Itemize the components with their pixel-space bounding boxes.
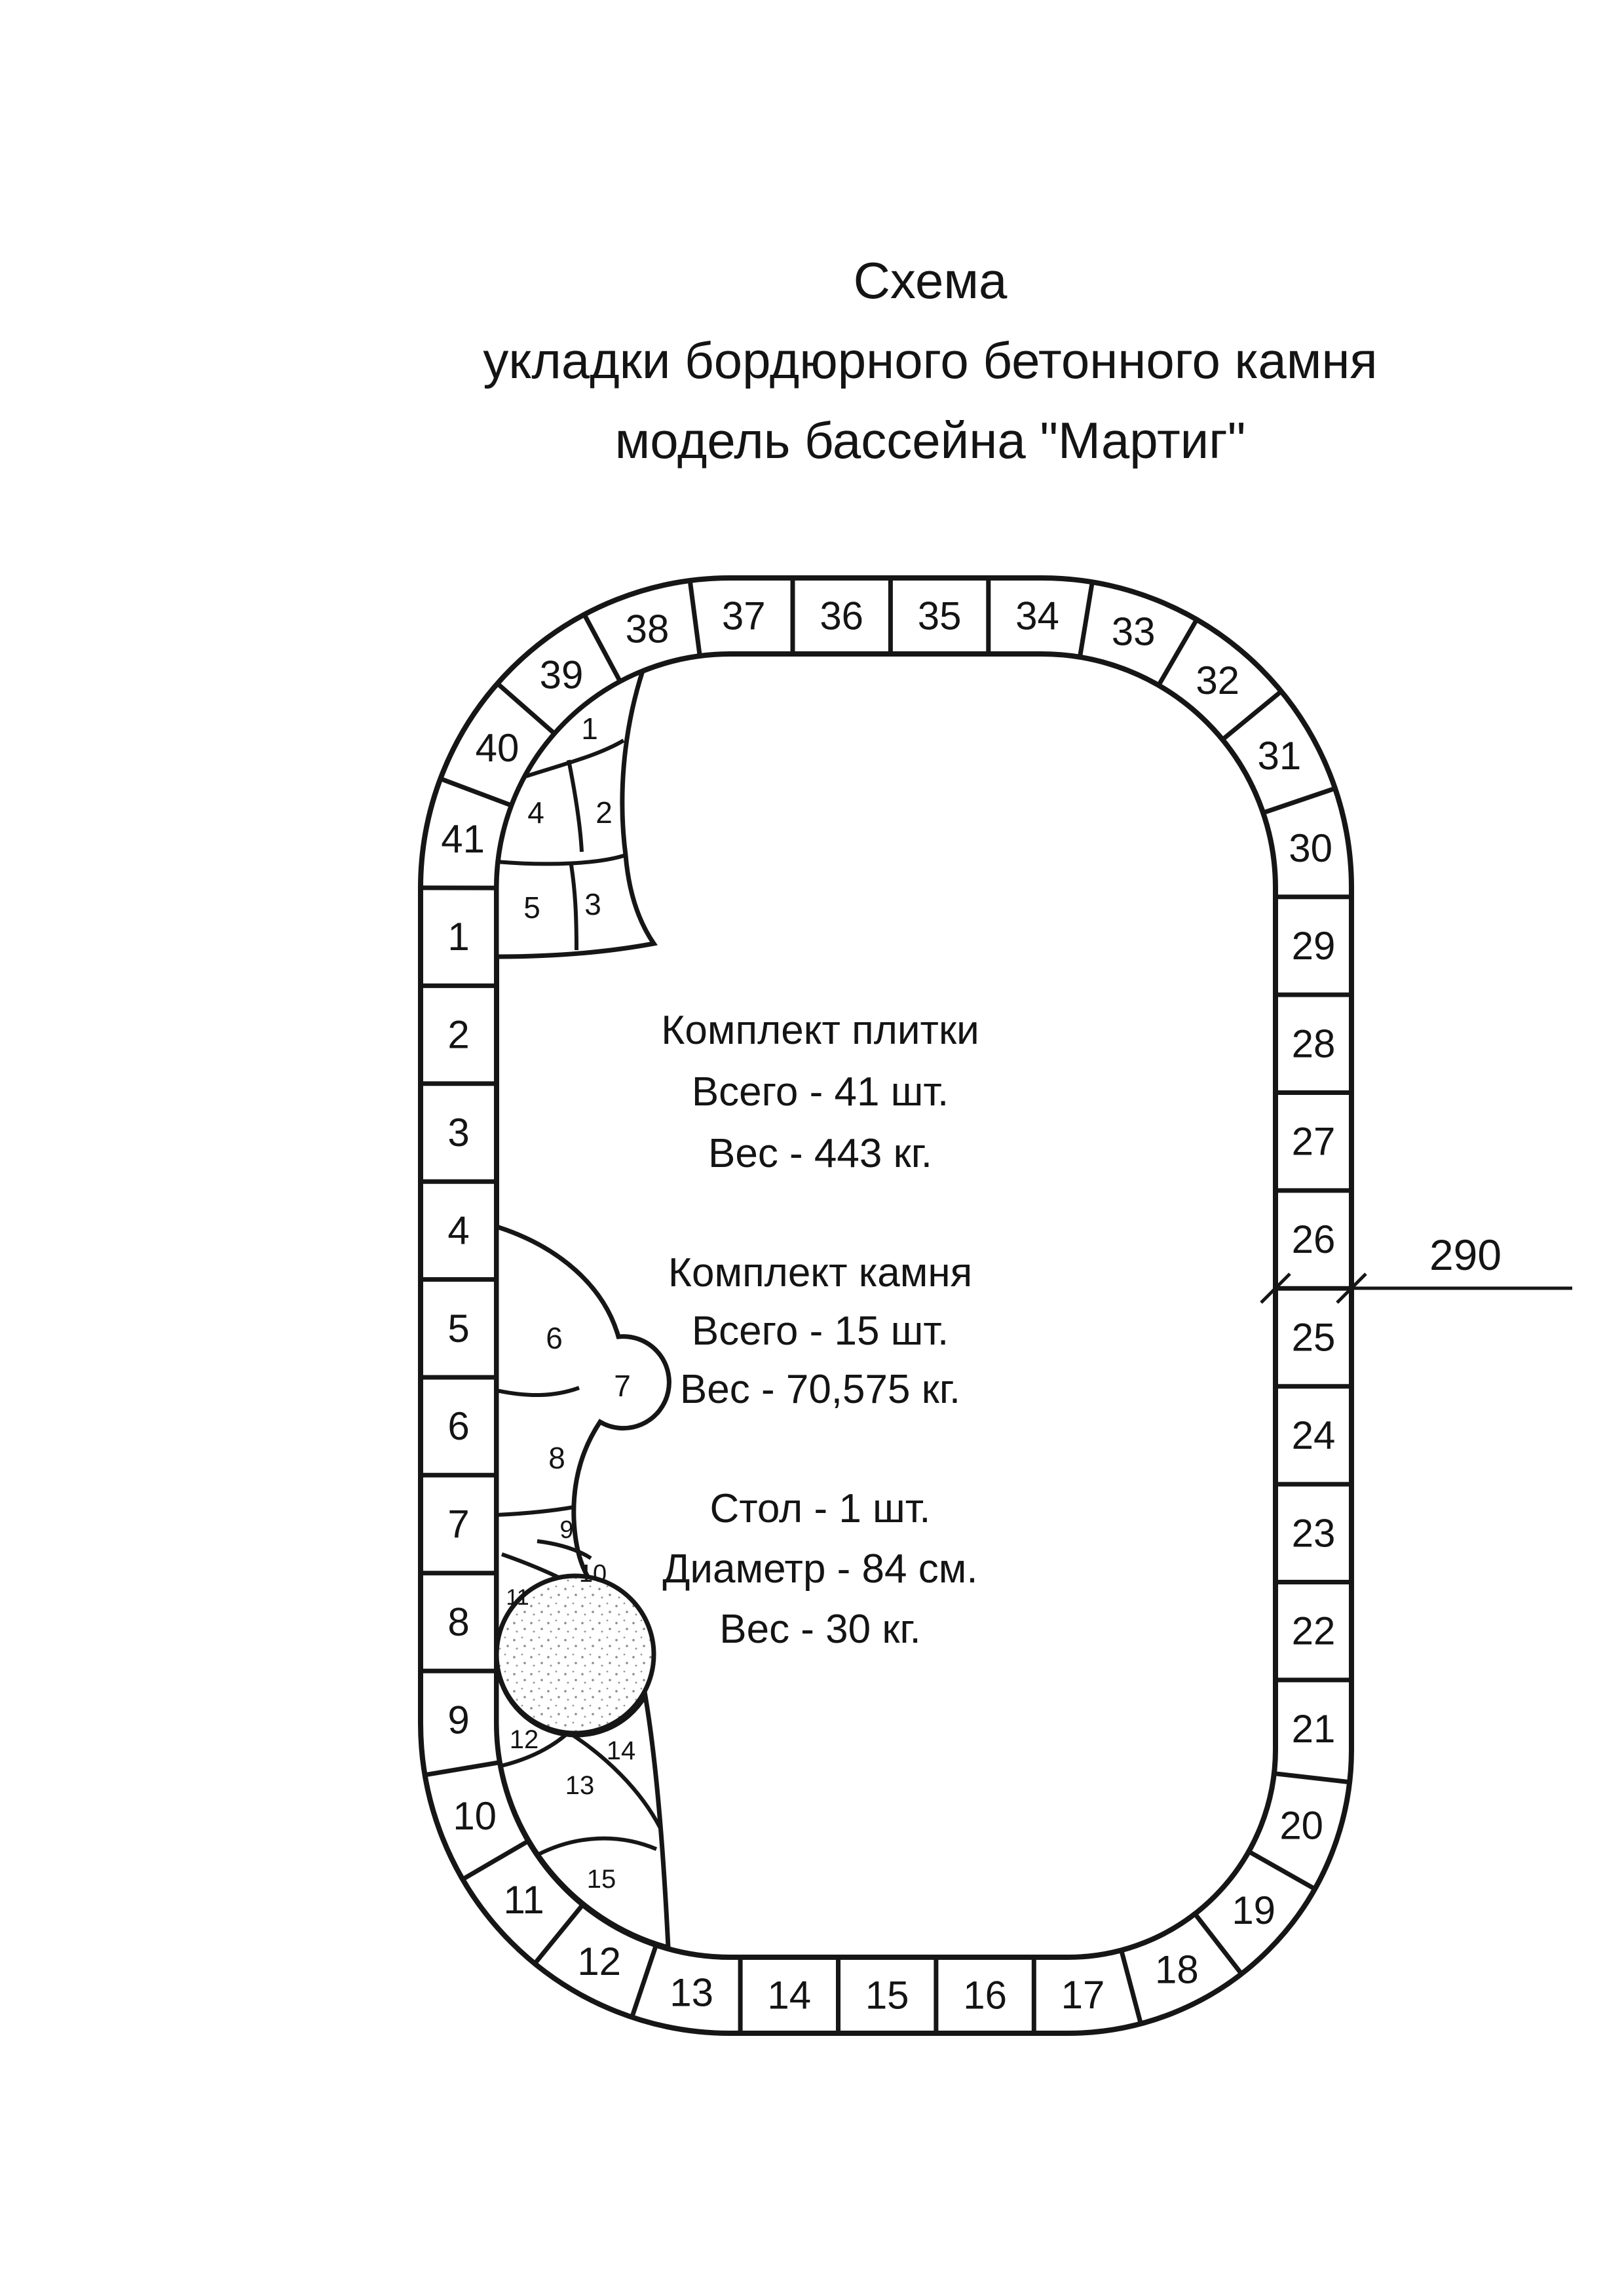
border-tile-label: 24 [1292,1413,1336,1457]
border-tile-label: 32 [1196,659,1239,702]
stone-piece-label: 10 [579,1560,607,1588]
border-tile-label: 39 [540,653,584,697]
border-tile-label: 1 [447,915,469,959]
border-tile-label: 41 [441,817,485,861]
border-tile-label: 5 [447,1307,469,1350]
stone-piece-label: 5 [523,890,540,925]
border-tile-label: 8 [447,1600,469,1644]
scanned-document-page: Схема укладки бордюрного бетонного камня… [0,0,1624,2296]
info-line: Всего - 41 шт. [692,1069,949,1115]
border-tile-label: 2 [447,1013,469,1057]
dimension-label: 290 [1429,1231,1501,1279]
border-tile-label: 7 [447,1502,469,1546]
border-tile-label: 31 [1258,734,1302,778]
border-tile-label: 6 [447,1404,469,1448]
border-tile-label: 21 [1292,1707,1336,1751]
info-block-stones: Комплект камня Всего - 15 шт. Вес - 70,5… [668,1250,972,1412]
border-tile-label: 33 [1112,610,1156,654]
stone-piece-label: 13 [565,1771,595,1800]
border-tile-label: 35 [918,594,962,638]
stone-piece-label: 2 [595,795,613,830]
border-tile-label: 20 [1279,1804,1323,1848]
border-tile-label: 36 [820,594,863,638]
border-tile-label: 16 [963,1974,1007,2018]
border-tile-label: 3 [447,1111,469,1155]
stone-piece-label: 11 [506,1585,529,1610]
border-tile-label: 9 [447,1698,469,1742]
border-tile-label: 10 [453,1794,497,1838]
border-tile-label: 12 [577,1940,621,1983]
info-line: Вес - 30 кг. [719,1607,921,1652]
border-tile-label: 29 [1292,924,1336,968]
stone-piece-label: 6 [546,1321,563,1355]
title-line-1: Схема [854,252,1008,309]
info-line: Вес - 70,575 кг. [680,1367,960,1412]
title-line-3: модель бассейна "Мартиг" [615,411,1246,469]
border-tile-label: 18 [1155,1948,1199,1992]
stone-piece-label: 7 [614,1369,631,1403]
stone-piece-label: 15 [587,1865,616,1894]
document-title: Схема укладки бордюрного бетонного камня… [483,252,1377,469]
info-line: Стол - 1 шт. [709,1486,930,1531]
stone-piece-label: 1 [581,712,598,746]
stone-piece-label: 8 [548,1441,565,1475]
border-tile-label: 14 [767,1974,811,2018]
border-tile-label: 27 [1292,1120,1336,1164]
border-tile-label: 25 [1292,1316,1336,1360]
border-tile-label: 34 [1015,594,1059,638]
info-line: Комплект плитки [661,1008,979,1053]
stone-piece-label: 9 [559,1516,573,1544]
pool-layout-diagram: Схема укладки бордюрного бетонного камня… [0,0,1624,2296]
border-tile-label: 37 [722,594,766,638]
info-line: Всего - 15 шт. [692,1309,949,1354]
stone-piece-label: 12 [510,1725,539,1754]
border-tile-label: 40 [476,726,519,770]
border-tile-label: 19 [1232,1888,1275,1932]
border-tile-label: 13 [670,1970,713,2014]
border-tile-label: 22 [1292,1609,1336,1653]
stone-piece-label: 3 [584,887,601,921]
border-tile-label: 4 [447,1208,469,1252]
info-line: Диаметр - 84 см. [662,1546,977,1592]
stone-piece-label: 4 [527,795,544,830]
border-tile-label: 38 [626,607,670,651]
info-line: Вес - 443 кг. [708,1131,932,1176]
stone-piece-label: 14 [607,1736,636,1765]
border-tile-label: 30 [1289,826,1332,870]
border-tile-label: 23 [1292,1511,1336,1555]
info-block-tiles: Комплект плитки Всего - 41 шт. Вес - 443… [661,1008,979,1176]
border-tile-label: 28 [1292,1022,1336,1065]
border-tile-label: 26 [1292,1217,1336,1261]
title-line-2: укладки бордюрного бетонного камня [483,332,1377,389]
info-line: Комплект камня [668,1250,972,1295]
border-tile-label: 11 [503,1878,544,1922]
border-tile-label: 17 [1061,1973,1105,2017]
border-tile-label: 15 [865,1974,909,2018]
